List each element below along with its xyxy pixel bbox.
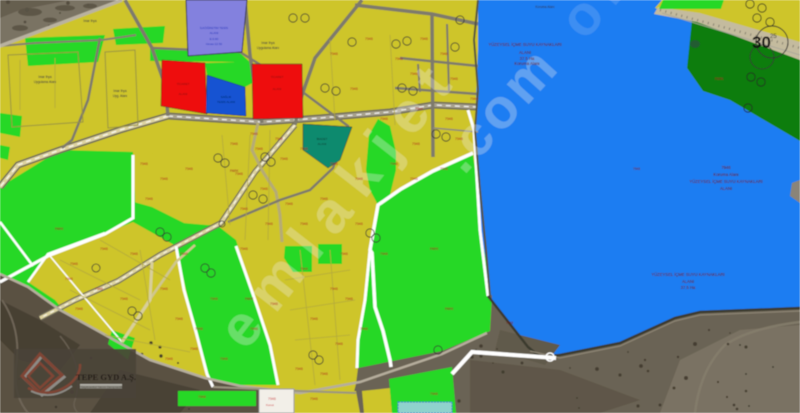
svg-text:7946: 7946 <box>275 137 283 141</box>
svg-text:Uygulama Alanı: Uygulama Alanı <box>34 80 56 84</box>
svg-text:7946: 7946 <box>160 177 168 181</box>
svg-text:7946: 7946 <box>310 317 318 321</box>
svg-text:Koruma Alanı: Koruma Alanı <box>514 61 539 66</box>
svg-text:7946: 7946 <box>330 287 338 291</box>
svg-text:7946: 7946 <box>295 367 303 371</box>
svg-text:7946: 7946 <box>185 167 193 171</box>
svg-text:37.5 Ha: 37.5 Ha <box>681 285 696 290</box>
svg-text:7946: 7946 <box>360 327 368 331</box>
svg-text:7946: 7946 <box>300 147 308 151</box>
svg-text:7946: 7946 <box>300 267 308 271</box>
svg-text:30: 30 <box>752 33 771 52</box>
svg-text:E:0.60: E:0.60 <box>210 37 219 41</box>
svg-text:İBADET: İBADET <box>317 136 328 141</box>
svg-text:Konut: Konut <box>266 403 274 407</box>
svg-text:SAĞLIK: SAĞLIK <box>221 94 232 99</box>
svg-text:PARK: PARK <box>55 227 64 231</box>
svg-text:ALANI: ALANI <box>519 50 531 55</box>
svg-text:7946: 7946 <box>195 327 203 331</box>
svg-text:PARK: PARK <box>445 307 454 311</box>
svg-text:7946: 7946 <box>130 252 138 256</box>
svg-text:TESİS ALANI: TESİS ALANI <box>217 99 235 104</box>
svg-text:Imar Ihya: Imar Ihya <box>83 19 97 23</box>
svg-text:7946: 7946 <box>198 395 206 399</box>
svg-text:7946: 7946 <box>470 97 478 101</box>
svg-text:7946: 7946 <box>506 321 513 325</box>
svg-text:7946: 7946 <box>100 247 108 251</box>
svg-text:7946: 7946 <box>420 37 428 41</box>
svg-text:7946: 7946 <box>240 247 248 251</box>
svg-text:PARK: PARK <box>230 169 239 173</box>
svg-text:7946: 7946 <box>355 177 363 181</box>
svg-text:7946: 7946 <box>240 207 248 211</box>
svg-text:7946: 7946 <box>260 187 268 191</box>
svg-text:7946: 7946 <box>440 52 448 56</box>
svg-text:Imar Ihya: Imar Ihya <box>38 75 52 79</box>
svg-text:7946: 7946 <box>310 397 318 401</box>
svg-text:7946: 7946 <box>140 162 148 166</box>
svg-text:7946: 7946 <box>440 167 448 171</box>
svg-text:7946: 7946 <box>410 177 418 181</box>
svg-text:ALANI: ALANI <box>682 279 694 284</box>
svg-text:7946: 7946 <box>345 297 353 301</box>
svg-text:ALANI: ALANI <box>318 142 327 146</box>
svg-text:İLKÖĞRETİM TESİS: İLKÖĞRETİM TESİS <box>200 25 228 30</box>
svg-text:Uygulama Alanı: Uygulama Alanı <box>257 46 279 50</box>
svg-text:Koruma Alanı: Koruma Alanı <box>713 172 738 177</box>
svg-text:Hmax:12.50: Hmax:12.50 <box>206 42 223 46</box>
svg-text:7946: 7946 <box>270 302 278 306</box>
svg-text:7946: 7946 <box>340 252 348 256</box>
svg-text:YÜZEYSEL İÇME SUYU KAYNAKLARI: YÜZEYSEL İÇME SUYU KAYNAKLARI <box>488 42 561 47</box>
svg-text:7946: 7946 <box>455 137 463 141</box>
svg-text:7946: 7946 <box>175 317 183 321</box>
svg-text:7946: 7946 <box>230 142 238 146</box>
svg-text:ALANI: ALANI <box>273 87 282 91</box>
svg-text:7946: 7946 <box>95 287 103 291</box>
svg-text:7946: 7946 <box>335 342 343 346</box>
svg-text:7946: 7946 <box>255 147 263 151</box>
svg-text:7946: 7946 <box>395 57 403 61</box>
svg-text:YÜZEYSEL İÇME SUYU KAYNAKLARI: YÜZEYSEL İÇME SUYU KAYNAKLARI <box>651 272 724 277</box>
svg-text:7946: 7946 <box>450 77 458 81</box>
svg-text:7946: 7946 <box>445 117 453 121</box>
svg-text:7946: 7946 <box>300 222 308 226</box>
svg-text:7946: 7946 <box>285 202 293 206</box>
svg-text:7946: 7946 <box>280 157 288 161</box>
svg-text:YÜZEYSEL İÇME SUYU KAYNAKLARI: YÜZEYSEL İÇME SUYU KAYNAKLARI <box>689 179 762 184</box>
svg-text:PARK: PARK <box>715 77 724 81</box>
svg-text:Imar Ihya: Imar Ihya <box>113 89 127 93</box>
svg-text:7946: 7946 <box>268 397 276 401</box>
svg-text:7946: 7946 <box>330 162 338 166</box>
svg-text:7946: 7946 <box>220 357 228 361</box>
svg-text:7946: 7946 <box>330 52 338 56</box>
svg-text:7946: 7946 <box>265 222 273 226</box>
svg-text:7946: 7946 <box>250 327 258 331</box>
svg-text:Gayrimenkul Yatırım Danışmanlı: Gayrimenkul Yatırım Danışmanlık <box>81 385 123 389</box>
svg-text:Koruma Alanı: Koruma Alanı <box>535 5 554 9</box>
svg-text:7946: 7946 <box>380 252 388 256</box>
svg-text:TİCARET: TİCARET <box>271 74 284 79</box>
svg-text:7946: 7946 <box>160 287 168 291</box>
svg-text:7946: 7946 <box>165 357 173 361</box>
svg-text:7946: 7946 <box>70 262 78 266</box>
svg-text:TİCARET: TİCARET <box>177 81 190 86</box>
svg-text:7946: 7946 <box>412 142 420 146</box>
svg-text:7946: 7946 <box>65 277 73 281</box>
svg-text:25: 25 <box>770 34 777 40</box>
svg-text:7946: 7946 <box>320 197 328 201</box>
svg-text:7946: 7946 <box>633 167 640 171</box>
svg-text:ALANI: ALANI <box>210 31 219 35</box>
svg-text:TEPE GYD A.Ş.: TEPE GYD A.Ş. <box>76 372 136 382</box>
svg-text:7946: 7946 <box>721 165 731 170</box>
svg-text:7946: 7946 <box>415 107 423 111</box>
svg-text:7946: 7946 <box>430 392 438 396</box>
svg-text:7946: 7946 <box>365 37 373 41</box>
svg-text:PARK: PARK <box>245 297 254 301</box>
svg-text:PARK: PARK <box>430 247 439 251</box>
svg-text:7946: 7946 <box>190 347 198 351</box>
svg-text:7946: 7946 <box>75 307 83 311</box>
svg-text:Uyg. Alanı: Uyg. Alanı <box>113 94 128 98</box>
svg-text:ALANI: ALANI <box>720 186 732 191</box>
svg-text:7946: 7946 <box>250 132 258 136</box>
svg-text:7946: 7946 <box>355 222 363 226</box>
svg-text:7946: 7946 <box>380 117 388 121</box>
svg-text:7946: 7946 <box>320 372 328 376</box>
svg-text:7946: 7946 <box>350 87 358 91</box>
svg-text:7946: 7946 <box>210 297 218 301</box>
svg-text:7946: 7946 <box>145 197 153 201</box>
svg-text:7946: 7946 <box>390 162 398 166</box>
svg-text:Imar Ihya: Imar Ihya <box>261 41 275 45</box>
svg-text:ALANI: ALANI <box>179 92 188 96</box>
svg-text:7946: 7946 <box>410 72 418 76</box>
svg-text:7946: 7946 <box>120 297 128 301</box>
svg-text:7946: 7946 <box>180 252 188 256</box>
